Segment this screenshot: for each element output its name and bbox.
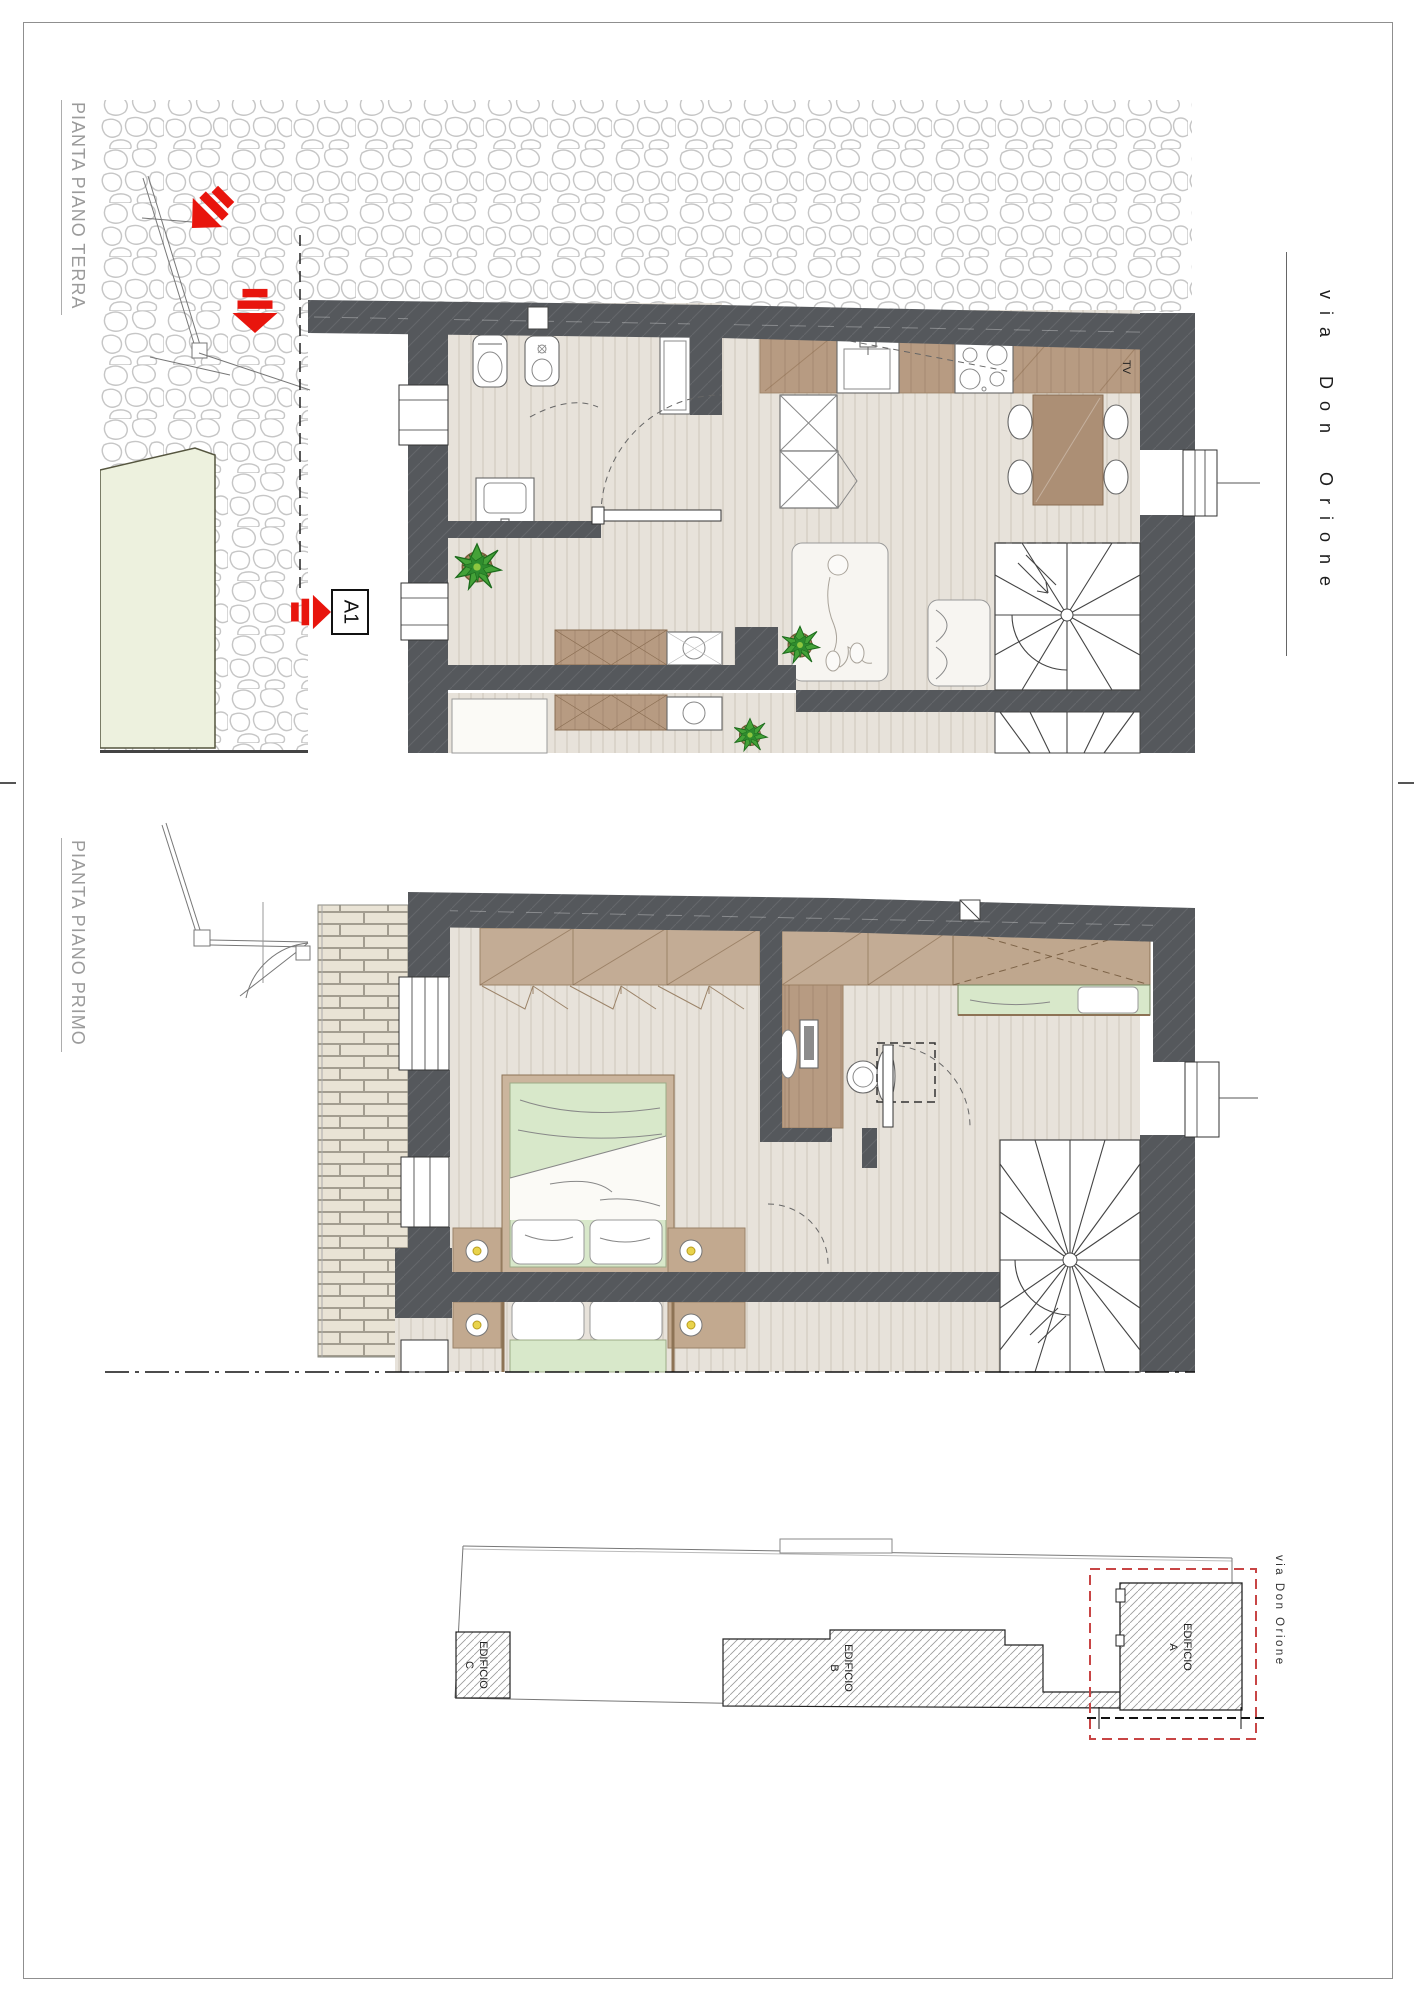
- spiral-staircase-mirrored: [995, 712, 1140, 753]
- left-edge-tick: [0, 782, 16, 784]
- first-floor-plan: [100, 780, 1260, 1392]
- shower: [660, 337, 690, 414]
- toilet: [473, 335, 507, 387]
- svg-text:A1: A1: [340, 600, 362, 624]
- toilet: [847, 1061, 879, 1093]
- window: [1185, 1062, 1258, 1137]
- right-edge-tick: [1398, 782, 1414, 784]
- street-label: via Don Orione: [1315, 290, 1336, 598]
- single-bed: [958, 985, 1150, 1015]
- tv-label: TV: [1120, 360, 1132, 375]
- svg-text:EDIFICIO: EDIFICIO: [842, 1644, 854, 1692]
- wardrobe: [782, 928, 953, 985]
- spiral-staircase: [995, 543, 1140, 690]
- bathroom-vanity: [779, 985, 843, 1128]
- label-first-floor-plan: PIANTA PIANO PRIMO: [61, 838, 88, 1052]
- svg-text:A: A: [1167, 1643, 1179, 1651]
- double-bed: [502, 1075, 674, 1275]
- brick-terrace: [318, 905, 408, 1357]
- courtyard-green: [100, 448, 215, 748]
- svg-text:EDIFICIO: EDIFICIO: [477, 1641, 489, 1689]
- ground-floor-plan: A1 TV: [100, 95, 1260, 760]
- wall-stub: [735, 627, 778, 665]
- building-b: EDIFICIO B: [723, 1630, 1120, 1708]
- bidet: [525, 336, 559, 386]
- drawing-sheet: PIANTA PIANO TERRA PIANTA PIANO PRIMO vi…: [0, 0, 1414, 2000]
- window: [399, 977, 449, 1070]
- storage-cabinets: [555, 630, 667, 665]
- nightstand: [453, 1228, 501, 1274]
- street-edge-line: [1286, 252, 1287, 656]
- svg-text:C: C: [463, 1661, 475, 1669]
- svg-text:B: B: [828, 1664, 840, 1671]
- spiral-staircase: [1000, 1140, 1140, 1372]
- building-c: EDIFICIO C: [456, 1632, 510, 1698]
- window: [1183, 450, 1260, 516]
- section-marker-a1: A1: [332, 590, 368, 634]
- site-plan: EDIFICIO C EDIFICIO B EDIFICIO A via Don…: [370, 1535, 1340, 1885]
- window: [401, 583, 448, 640]
- svg-text:EDIFICIO: EDIFICIO: [1181, 1623, 1193, 1671]
- window: [401, 1157, 449, 1227]
- street-label-small: via Don Orione: [1273, 1555, 1285, 1667]
- kitchen-sink: [837, 338, 899, 393]
- washing-machine: [667, 632, 722, 665]
- label-ground-floor-plan: PIANTA PIANO TERRA: [61, 100, 88, 315]
- building-a: EDIFICIO A: [1116, 1583, 1242, 1710]
- boundary-fence: [162, 823, 310, 998]
- nightstand: [668, 1228, 745, 1274]
- window: [399, 385, 448, 445]
